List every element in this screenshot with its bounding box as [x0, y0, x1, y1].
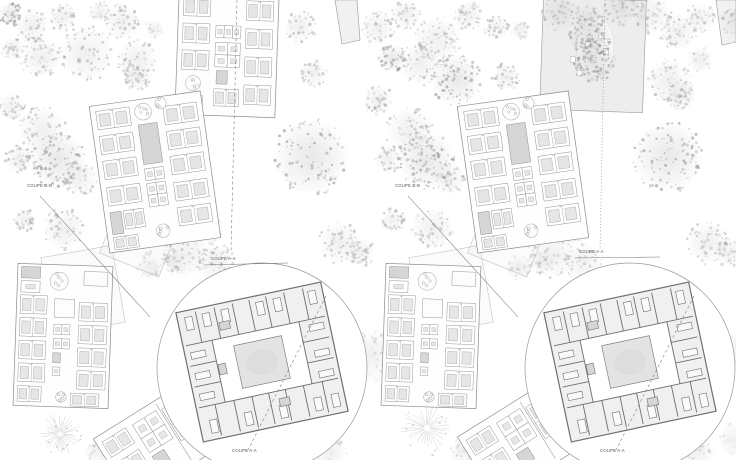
section-label: COUPE A-A — [579, 249, 604, 254]
building-block-south-right — [381, 263, 481, 408]
tree — [161, 250, 184, 273]
tree — [20, 36, 62, 78]
section-label: COUPE A-A — [232, 448, 257, 453]
section-label: COUPE A-A — [211, 256, 236, 261]
building-block-south-left — [13, 263, 113, 408]
building-block-mid-left — [89, 91, 221, 253]
building-block-mid-right — [457, 91, 589, 253]
site-plan-canvas: COUPE B-BCOUPE A-ACOUPE A-ACOUPE B-BCOUP… — [0, 0, 736, 460]
architectural-site-plan: COUPE B-BCOUPE A-ACOUPE A-ACOUPE B-BCOUP… — [0, 0, 736, 460]
tree — [345, 237, 374, 266]
section-label: COUPE B-B — [27, 183, 52, 188]
tree — [632, 121, 703, 192]
section-label: COUPE B-B — [395, 183, 420, 188]
section-label: COUPE A-A — [600, 448, 625, 453]
